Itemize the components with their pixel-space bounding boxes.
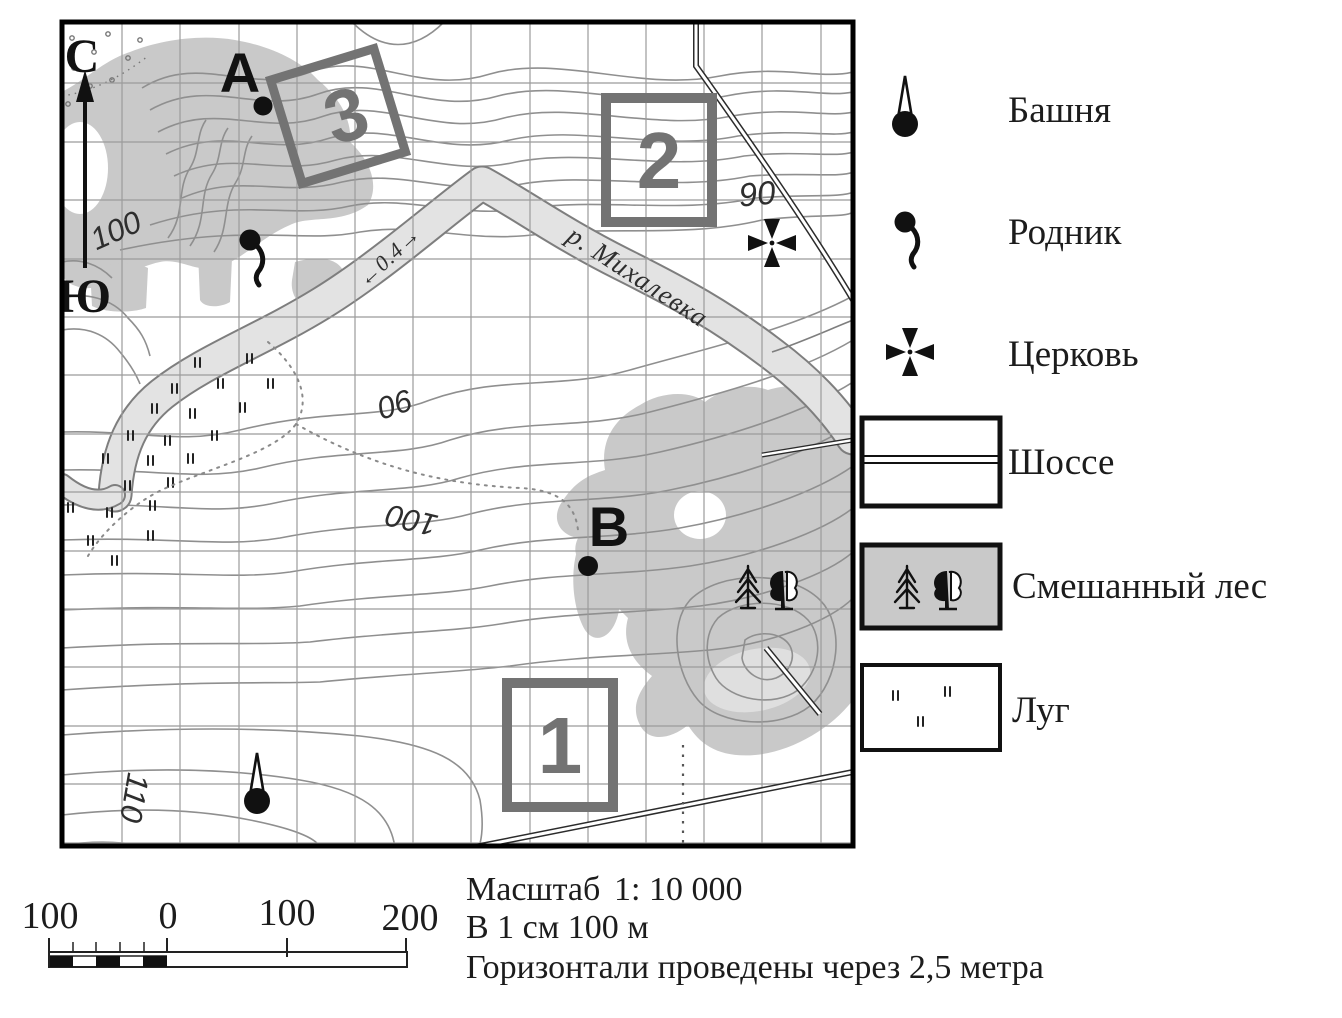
square-1: 1 bbox=[507, 683, 613, 807]
point-b-label: В bbox=[589, 495, 629, 558]
scale-equivalence: В 1 см 100 м bbox=[466, 909, 649, 946]
square-1-label: 1 bbox=[538, 701, 583, 790]
point-b-dot bbox=[578, 556, 598, 576]
scale-tick-label-2: 100 bbox=[259, 892, 316, 934]
map-canvas: 3 2 1 С Ю А В 100 90 100 110 90 р. М bbox=[0, 0, 1342, 1018]
meadow-swatch bbox=[862, 665, 1000, 750]
forest-swatch bbox=[862, 545, 1000, 628]
church-icon-map bbox=[748, 219, 796, 267]
south-label: Ю bbox=[57, 270, 111, 323]
elevation-label-90-church: 90 bbox=[737, 173, 777, 213]
spring-icon-map bbox=[240, 230, 263, 286]
legend-label-meadow: Луг bbox=[1012, 690, 1070, 731]
legend-label-tower: Башня bbox=[1008, 90, 1111, 131]
spring-icon bbox=[895, 212, 918, 268]
legend-label-highway: Шоссе bbox=[1008, 442, 1114, 483]
north-label: С bbox=[65, 30, 100, 83]
legend: Башня Родник Церковь Шоссе Смешанный лес bbox=[862, 76, 1267, 750]
contour-interval-note: Горизонтали проведены через 2,5 метра bbox=[466, 949, 1044, 986]
legend-label-forest: Смешанный лес bbox=[1012, 566, 1267, 607]
legend-item-spring: Родник bbox=[895, 212, 1123, 268]
legend-item-forest: Смешанный лес bbox=[862, 545, 1267, 628]
elevation-label-110-south: 110 bbox=[113, 770, 156, 825]
legend-item-meadow: Луг bbox=[862, 665, 1070, 750]
legend-label-church: Церковь bbox=[1008, 334, 1139, 375]
scale-tick-label-1: 0 bbox=[159, 895, 178, 937]
river-name-label: р. Михалевка bbox=[560, 219, 714, 333]
tower-icon bbox=[892, 76, 918, 137]
church-icon bbox=[886, 328, 934, 376]
legend-label-spring: Родник bbox=[1008, 212, 1123, 253]
legend-item-tower: Башня bbox=[892, 76, 1111, 137]
scale-tick-label-0: 100 bbox=[22, 895, 79, 937]
scale-bar: 100 0 100 200 bbox=[22, 892, 439, 967]
square-2-label: 2 bbox=[637, 116, 682, 205]
legend-item-highway: Шоссе bbox=[862, 418, 1114, 506]
elevation-label-90-mid: 90 bbox=[373, 382, 417, 426]
scale-tick-label-3: 200 bbox=[382, 897, 439, 939]
highway-swatch bbox=[862, 418, 1000, 506]
scale-title: Масштаб bbox=[466, 871, 600, 908]
scale-caption: Масштаб 1: 10 000 В 1 см 100 м Горизонта… bbox=[466, 871, 1044, 986]
point-a-label: А bbox=[220, 41, 260, 104]
elevation-label-100-mid: 100 bbox=[382, 497, 440, 543]
topographic-map-page: 3 2 1 С Ю А В 100 90 100 110 90 р. М bbox=[0, 0, 1342, 1018]
legend-item-church: Церковь bbox=[886, 328, 1139, 376]
scale-ratio: 1: 10 000 bbox=[614, 871, 742, 908]
